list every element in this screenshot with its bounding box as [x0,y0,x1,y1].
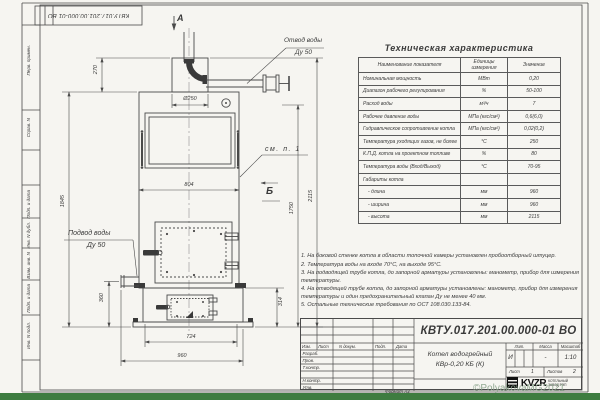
sign-utv: Утв. [303,386,313,390]
inlet-dn50-label: Ду 50 [87,242,105,249]
see-note-label: см. п. 1 [265,146,301,153]
dim-1750: 1750 [290,202,296,214]
col-data: Дата [396,345,407,349]
spec-row: - длинамм960 [359,186,561,199]
frame-field-inv-dubl: Инв. N дубл. [27,222,32,249]
dim-2115: 2115 [309,190,315,202]
dim-960: 960 [162,354,202,360]
sheets-value: 2 [573,370,576,375]
spec-row: Рабочее давление водыМПа (кгс/см²)0,6(6,… [359,110,561,123]
drawing-sheet: КВТУ.017.201.00.000-01 ВО Перв. примен. … [0,0,600,400]
note-4: 4. На отводящей трубе котла, до запорной… [301,286,581,301]
spec-col-name: Наименование показателя [359,58,461,73]
product-title-line2: КВр-0,20 КБ (К) [436,360,485,370]
product-title: Котел водогрейный КВр-0,20 КБ (К) [414,344,506,376]
col-list: Лист [318,345,329,349]
dim-724: 724 [171,335,211,341]
sign-prov: Пров. [303,359,315,363]
corner-stamp-rotated: КВТУ.017.201.00.000-01 ВО [35,6,142,25]
spec-table-title: Техническая характеристика [358,43,560,53]
frame-field-vzam-inv: Взам. инв. N [27,252,32,279]
spec-header-row: Наименование показателя Единицы измерени… [359,58,561,73]
dim-1845: 1845 [61,195,67,207]
note-1: 1. На боковой стенке котла в области топ… [301,253,581,261]
scale-value: 1:10 [558,355,583,361]
spec-row: К.П.Д. котла на проектном топливе%80 [359,148,561,161]
watermark: ©PolyakovaMG2021 [473,383,565,394]
sign-nkontr: Н.контр. [303,379,322,383]
product-title-line1: Котел водогрейный [428,350,493,360]
frame-field-inv-podl: Инв. N подл. [27,322,32,349]
spec-row: Гидравлическое сопротивление котлаМПа (к… [359,123,561,136]
dim-d250: Ø250 [175,97,205,103]
note-3: 3. На подводящей трубе котла, до запорно… [301,270,581,285]
spec-row: - высотамм2115 [359,211,561,224]
note-5: 5. Остальные технические требования по О… [301,302,581,310]
col-izm: Изм. [302,345,311,349]
frame-field-sprav-n: Справ. N [27,118,32,137]
spec-table: Наименование показателя Единицы измерени… [358,57,561,224]
spec-row: Расход водым³/ч7 [359,98,561,111]
sheet-label: Лист [509,370,520,374]
spec-row: - ширинамм960 [359,198,561,211]
outlet-water-label: Отвод воды [284,38,322,45]
spec-row: Температура уходящих газов, не более°С25… [359,135,561,148]
mass-label: Масса [533,345,558,349]
dim-360: 360 [100,293,106,302]
sign-razrab: Разраб. [303,352,319,356]
lit-value: И [506,355,515,362]
mass-value: - [533,355,558,362]
lit-label: Лит. [506,345,533,349]
spec-col-unit: Единицы измерения [461,58,508,73]
col-podp: Подп. [375,345,386,349]
frame-field-podp-data-2: Подп. и дата [27,284,32,313]
technical-notes: 1. На боковой стенке котла в области топ… [301,253,581,311]
dim-314: 314 [279,297,285,306]
sheet-value: 1 [531,370,534,375]
view-b-label: Б [266,187,273,197]
dim-804: 804 [169,183,209,189]
note-2: 2. Температура воды на входе 70°С, на вы… [301,262,581,270]
spec-row: Диапазон рабочего регулирования%50-100 [359,85,561,98]
col-n-dokum: N докум. [339,345,356,349]
spec-row: Номинальная мощностьМВт0,20 [359,73,561,86]
scale-label: Масштаб [558,345,583,349]
sign-tkontr: Т.контр. [303,366,321,370]
spec-row: Температура воды (Вход/Выход)°С70-95 [359,161,561,174]
spec-col-value: Значение [508,58,561,73]
outlet-dn50-label: Ду 50 [295,50,312,57]
section-a-label: А [177,14,184,23]
footer-green-bar [0,393,600,400]
doc-number: КВТУ.017.201.00.000-01 ВО [414,319,583,343]
inlet-water-label: Подвод воды [68,230,110,237]
spec-row: Габариты котла [359,173,561,186]
dim-270: 270 [94,65,100,74]
frame-field-perv-primen: Перв. примен. [27,45,32,76]
boiler-front-view [121,16,289,334]
sheets-label: Листов [547,370,562,374]
title-block: КВТУ.017.201.00.000-01 ВО Котел водогрей… [300,318,582,390]
frame-field-podp-data-1: Подп. и дата [27,190,32,219]
